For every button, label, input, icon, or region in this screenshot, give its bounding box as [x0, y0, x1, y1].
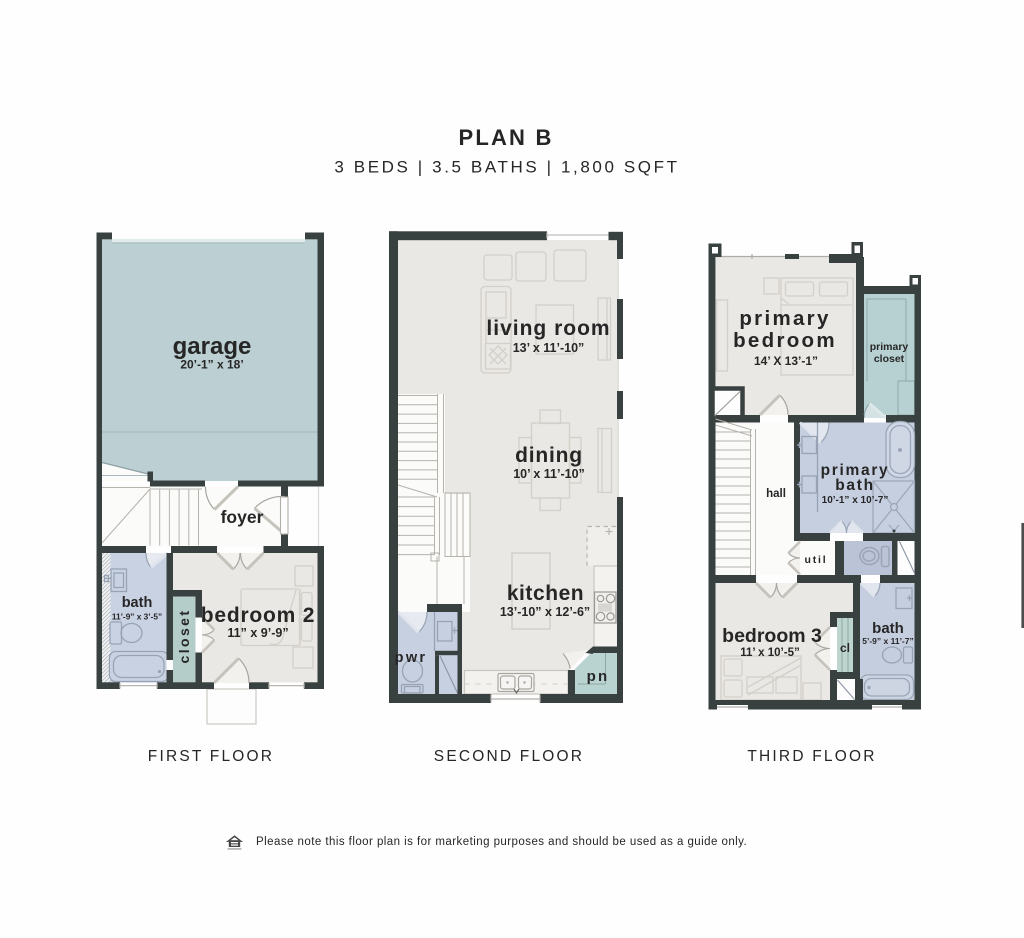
svg-text:primary: primary — [870, 341, 909, 353]
svg-text:bedroom 2: bedroom 2 — [201, 604, 316, 627]
svg-text:SECOND FLOOR: SECOND FLOOR — [434, 748, 584, 765]
svg-text:closet: closet — [874, 353, 905, 365]
svg-text:bath: bath — [835, 477, 875, 494]
svg-text:garage: garage — [173, 333, 252, 360]
svg-text:kitchen: kitchen — [507, 582, 584, 605]
svg-text:20’-1” x 18’: 20’-1” x 18’ — [180, 358, 243, 372]
svg-text:11” x 9’-9”: 11” x 9’-9” — [227, 626, 288, 640]
svg-text:13’ x 11’-10”: 13’ x 11’-10” — [513, 341, 585, 355]
svg-text:PLAN B: PLAN B — [458, 125, 553, 150]
svg-text:Please note this floor plan is: Please note this floor plan is for marke… — [256, 836, 747, 848]
svg-text:closet: closet — [176, 609, 192, 664]
svg-text:THIRD FLOOR: THIRD FLOOR — [747, 748, 876, 765]
svg-text:13’-10” x 12’-6”: 13’-10” x 12’-6” — [500, 605, 590, 619]
svg-text:util: util — [805, 554, 828, 566]
svg-text:primary: primary — [739, 307, 830, 330]
svg-text:14’ X 13’-1”: 14’ X 13’-1” — [754, 354, 818, 368]
svg-text:hall: hall — [766, 488, 786, 500]
svg-text:bath: bath — [872, 620, 904, 637]
svg-text:11’-9” x 3’-5”: 11’-9” x 3’-5” — [112, 612, 162, 622]
svg-text:dining: dining — [515, 444, 583, 467]
svg-text:10’-1” x 10’-7”: 10’-1” x 10’-7” — [822, 495, 889, 506]
svg-text:bath: bath — [122, 595, 153, 611]
svg-text:living room: living room — [486, 317, 610, 340]
svg-text:cl: cl — [840, 641, 850, 655]
svg-text:foyer: foyer — [221, 507, 264, 527]
svg-text:bedroom: bedroom — [733, 329, 837, 352]
svg-text:pwr: pwr — [395, 650, 428, 666]
svg-text:3 BEDS | 3.5 BATHS | 1,800 SQF: 3 BEDS | 3.5 BATHS | 1,800 SQFT — [334, 158, 679, 177]
svg-text:11’ x 10’-5”: 11’ x 10’-5” — [740, 647, 799, 659]
svg-text:10’ x 11’-10”: 10’ x 11’-10” — [513, 467, 585, 481]
svg-text:FIRST FLOOR: FIRST FLOOR — [148, 748, 274, 765]
svg-text:bedroom 3: bedroom 3 — [722, 625, 822, 647]
svg-text:5’-9” x 11’-7”: 5’-9” x 11’-7” — [862, 636, 914, 646]
svg-text:pn: pn — [587, 668, 610, 685]
